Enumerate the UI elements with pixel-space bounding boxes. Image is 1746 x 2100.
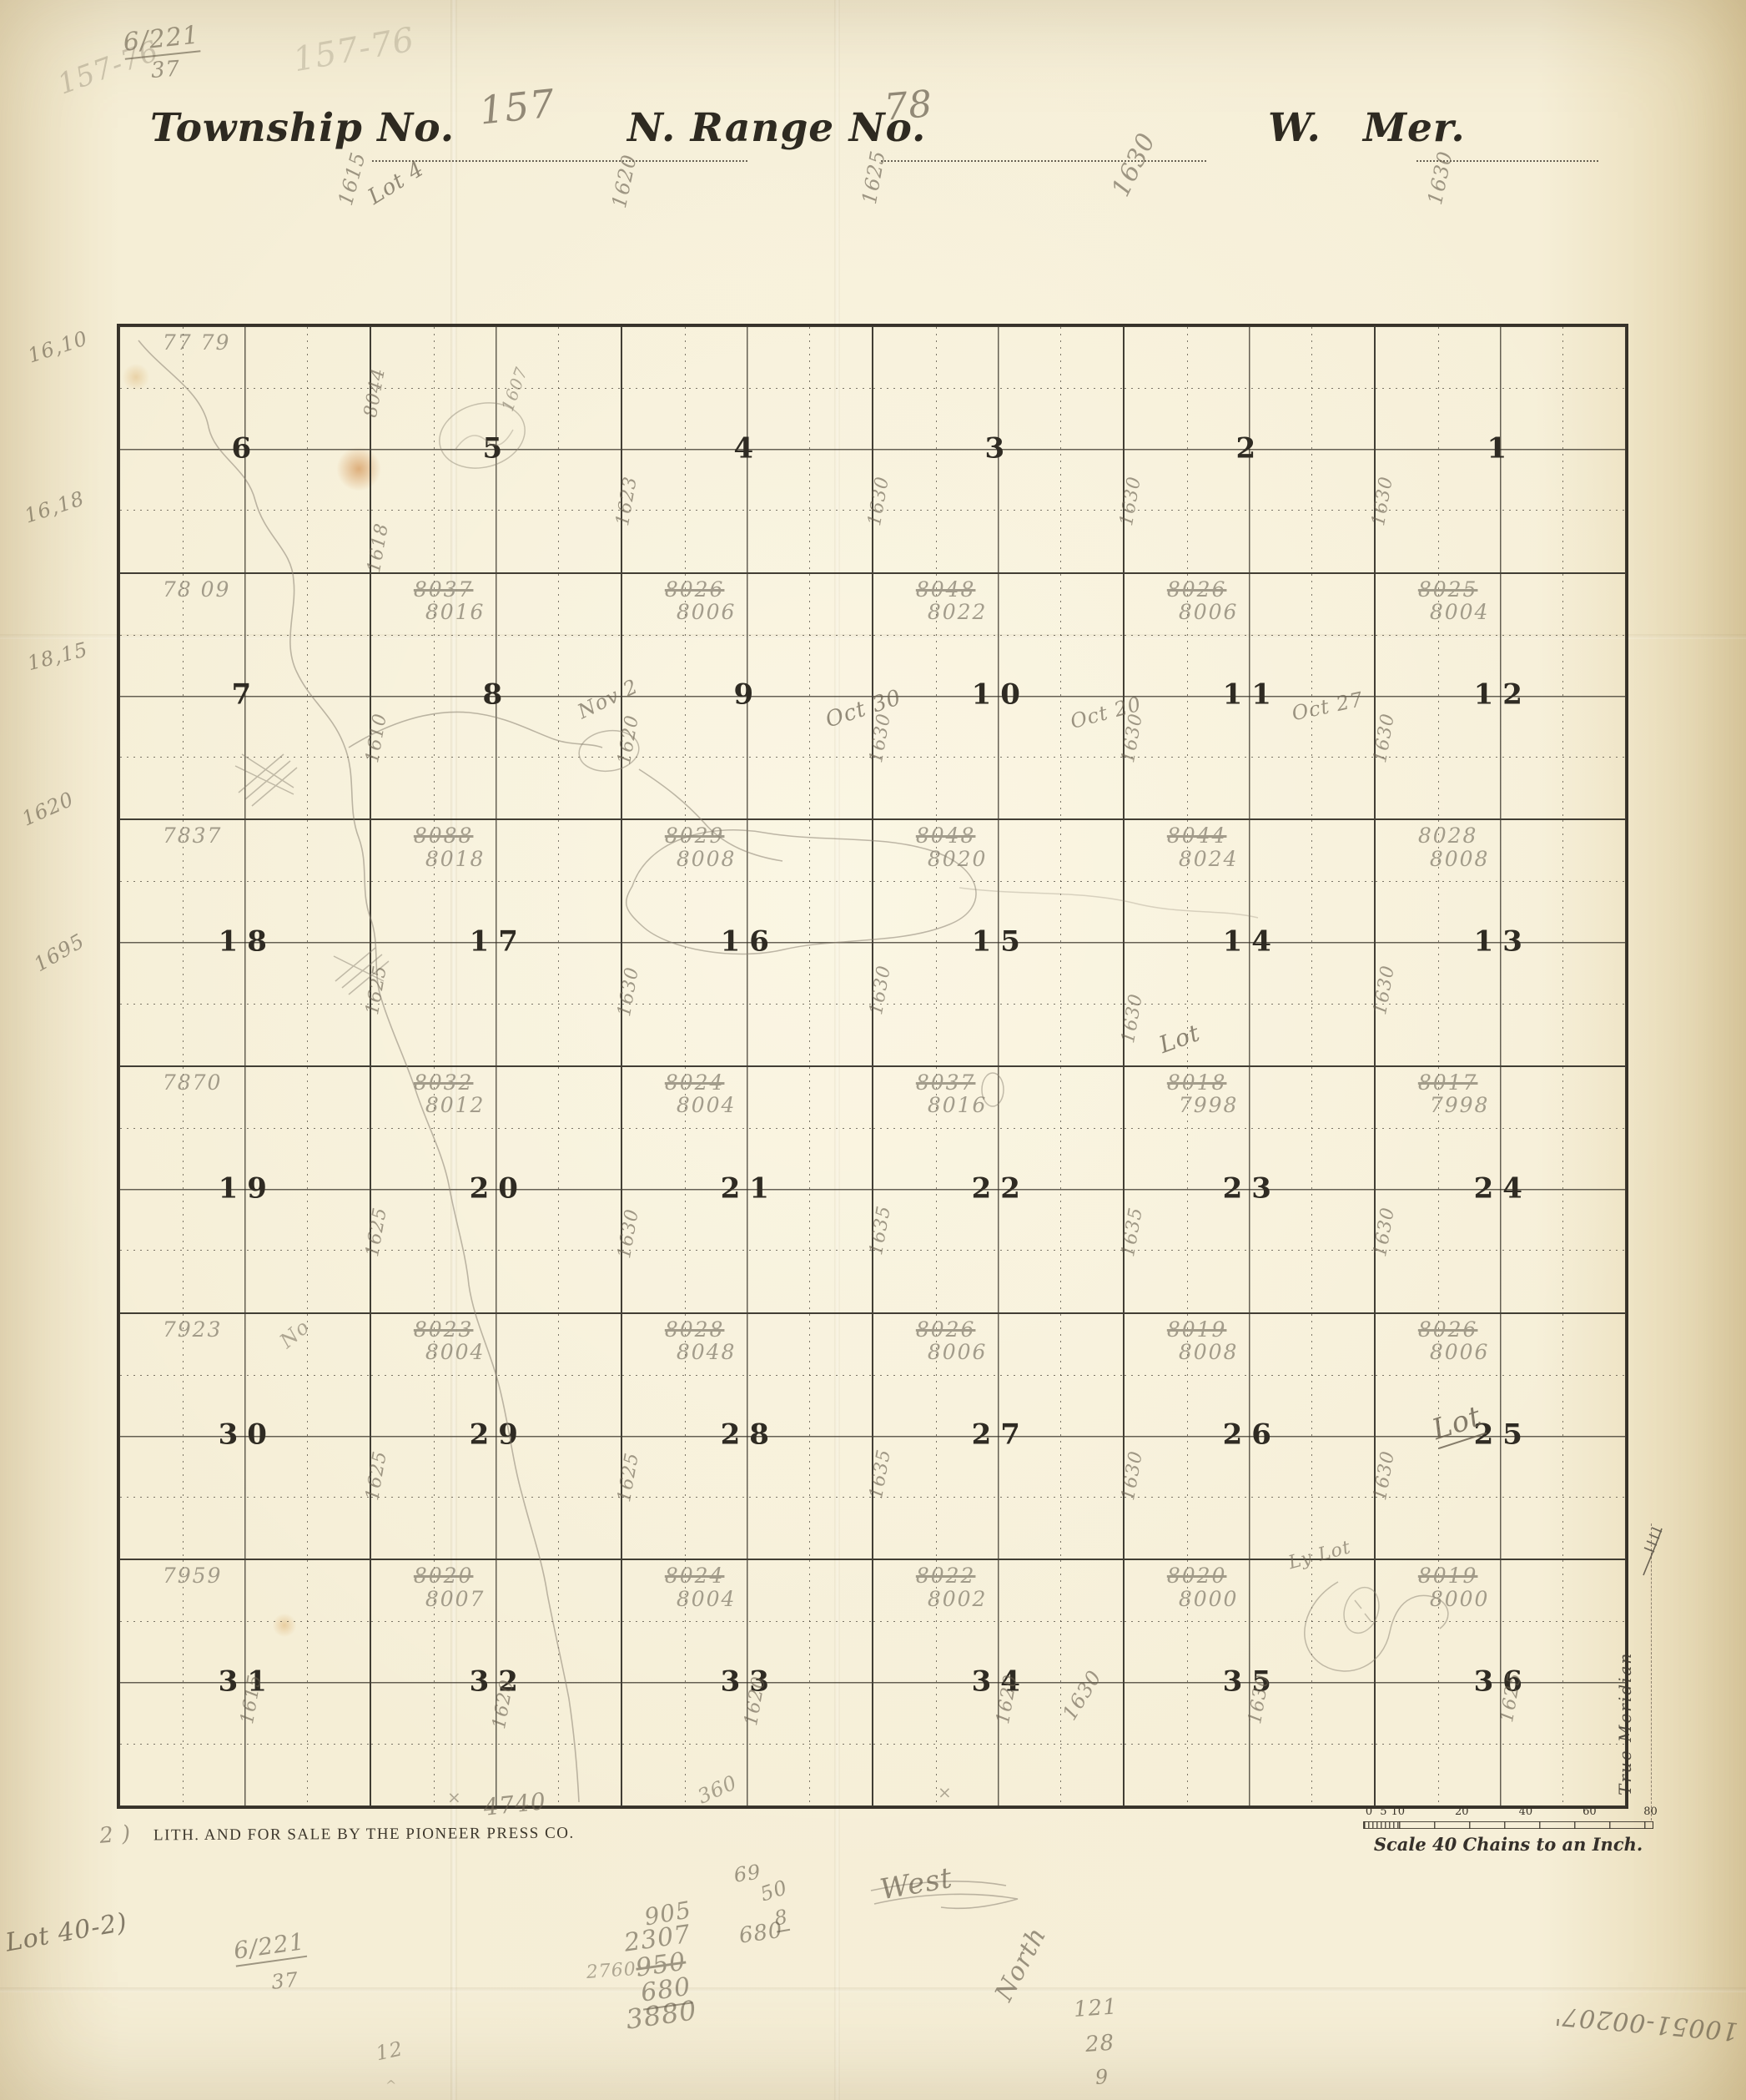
west-label: W. [1268, 105, 1321, 151]
section-number: 28 [721, 1418, 778, 1452]
pencil-note: Lot 4 [364, 156, 429, 209]
section-number: 7 [232, 678, 261, 712]
section-acreage-note: 80888018 [414, 824, 486, 870]
crossout-scribble [871, 1881, 1018, 1908]
pencil-note: 950 [634, 1947, 688, 1983]
pencil-note: 157-76 [290, 21, 418, 80]
section-number: 31 [219, 1665, 276, 1699]
scale-tick-label: 0 [1366, 1805, 1372, 1818]
section-grid: 77 7965432178 09780378016880268006980488… [117, 324, 1628, 1809]
section-27: 8026800627 [873, 1313, 1124, 1560]
pencil-note: North [989, 1922, 1053, 2006]
section-number: 12 [1474, 678, 1532, 712]
title-rule [881, 160, 1206, 162]
section-acreage-note: 80328012 [414, 1071, 486, 1117]
section-21: 8024800421 [621, 1066, 873, 1313]
section-26: 8019800826 [1124, 1313, 1375, 1560]
section-32: 8020800732 [370, 1559, 621, 1806]
section-9: 802680069 [621, 573, 873, 820]
publisher-imprint: LITH. AND FOR SALE BY THE PIONEER PRESS … [153, 1825, 575, 1846]
section-acreage-note: 7923 [163, 1318, 223, 1342]
section-31: 795931 [119, 1559, 370, 1806]
scale-tick-label: 10 [1391, 1805, 1405, 1818]
section-number: 19 [219, 1171, 276, 1205]
pencil-note: 37 [270, 1968, 299, 1994]
section-acreage-note: 80488022 [916, 578, 988, 624]
section-number: 20 [470, 1171, 527, 1205]
section-15: 8048802015 [873, 819, 1124, 1066]
section-acreage-note: 80228002 [916, 1564, 988, 1610]
section-14: 8044802414 [1124, 819, 1375, 1066]
title-rule [372, 160, 747, 162]
scale-tick-label: 60 [1582, 1805, 1597, 1818]
section-acreage-note: 80288048 [665, 1318, 737, 1364]
section-33: 8024800433 [621, 1559, 873, 1806]
section-20: 8032801220 [370, 1066, 621, 1313]
pencil-note: 2760 [586, 1959, 637, 1983]
section-acreage-note: 7837 [163, 824, 223, 848]
section-3: 3 [873, 326, 1124, 573]
section-acreage-note: 80208007 [414, 1564, 486, 1610]
pencil-note: 1620 [18, 788, 78, 831]
section-acreage-note: 80248004 [665, 1071, 737, 1117]
pencil-note: 16,18 [22, 486, 88, 527]
section-29: 8023800429 [370, 1313, 621, 1560]
pencil-note: 12 [374, 2037, 405, 2065]
pencil-note: 1615 [334, 149, 370, 208]
section-35: 8020800035 [1124, 1559, 1375, 1806]
section-acreage-note: 80268006 [665, 578, 737, 624]
section-acreage-note: 77 79 [163, 331, 231, 355]
scale-caption: Scale 40 Chains to an Inch. [1363, 1834, 1653, 1855]
section-11: 8026800611 [1124, 573, 1375, 820]
section-acreage-note: 80288008 [1418, 824, 1490, 870]
township-number-handwritten: 157 [477, 81, 557, 133]
section-number: 9 [734, 678, 763, 712]
section-acreage-note: 80268006 [1418, 1318, 1490, 1364]
pencil-note: 50 [757, 1876, 791, 1906]
pencil-note: West [878, 1861, 955, 1907]
section-acreage-note: 80378016 [414, 578, 486, 624]
pencil-note: 28 [1084, 2031, 1115, 2057]
pencil-note: 2 ) [98, 1821, 132, 1849]
section-acreage-note: 80258004 [1418, 578, 1490, 624]
section-number: 27 [972, 1418, 1029, 1452]
pencil-note: 37 [150, 57, 181, 83]
section-18: 783718 [119, 819, 370, 1066]
section-number: 15 [972, 925, 1029, 959]
section-number: 35 [1223, 1665, 1281, 1699]
section-acreage-note: 80187998 [1167, 1071, 1239, 1117]
section-number: 26 [1223, 1418, 1281, 1452]
section-7: 78 097 [119, 573, 370, 820]
range-label: N. Range No. [627, 105, 926, 151]
section-number: 4 [734, 431, 763, 465]
section-number: 21 [721, 1171, 778, 1205]
section-10: 8048802210 [873, 573, 1124, 820]
scale-bar-subdivisions [1364, 1822, 1401, 1828]
true-meridian-label: True Meridian [1615, 1652, 1635, 1795]
section-acreage-note: 80488020 [916, 824, 988, 870]
section-number: 33 [721, 1665, 778, 1699]
section-22: 8037801622 [873, 1066, 1124, 1313]
pencil-note: 18,15 [25, 637, 90, 675]
section-acreage-note: 7870 [163, 1071, 223, 1095]
pencil-note: 6/221 [122, 20, 201, 59]
section-number: 23 [1223, 1171, 1281, 1205]
section-23: 8018799823 [1124, 1066, 1375, 1313]
section-acreage-note: 80378016 [916, 1071, 988, 1117]
scale-bar-rule [1363, 1821, 1653, 1829]
pencil-note: 69 [732, 1860, 762, 1886]
section-acreage-note: 80208000 [1167, 1564, 1239, 1610]
section-2: 2 [1124, 326, 1375, 573]
true-meridian-line [1651, 1523, 1652, 1821]
section-19: 787019 [119, 1066, 370, 1313]
title-rule [1416, 160, 1598, 162]
section-30: 792330 [119, 1313, 370, 1560]
pencil-note: 121 [1073, 1994, 1119, 2022]
pencil-note: Lot 40-2) [3, 1907, 130, 1957]
section-number: 1 [1487, 431, 1517, 465]
section-number: 2 [1236, 431, 1265, 465]
section-number: 6 [232, 431, 261, 465]
scale-bar: 051020406080 Scale 40 Chains to an Inch. [1363, 1805, 1653, 1855]
section-acreage-note: 80238004 [414, 1318, 486, 1364]
section-number: 10 [972, 678, 1029, 712]
section-acreage-note: 80448024 [1167, 824, 1239, 870]
pencil-note: ^ [385, 2077, 397, 2093]
pencil-note: 680 [737, 1918, 784, 1949]
pencil-note: 8 [772, 1905, 790, 1932]
section-acreage-note: 80298008 [665, 824, 737, 870]
section-6: 77 796 [119, 326, 370, 573]
pencil-note: 1625 [858, 149, 890, 206]
section-16: 8029800816 [621, 819, 873, 1066]
section-number: 3 [985, 431, 1014, 465]
section-number: 13 [1474, 925, 1532, 959]
section-8: 803780168 [370, 573, 621, 820]
township-label: Township No. [150, 105, 455, 151]
section-acreage-note: 80268006 [916, 1318, 988, 1364]
scale-tick-labels: 051020406080 [1363, 1805, 1653, 1819]
section-number: 25 [1474, 1418, 1532, 1452]
section-1: 1 [1375, 326, 1626, 573]
pencil-note: 16,10 [25, 326, 91, 367]
section-4: 4 [621, 326, 873, 573]
section-17: 8088801817 [370, 819, 621, 1066]
pencil-note: 157-76 [53, 34, 164, 102]
township-plat-sheet: Township No. 157 N. Range No. 78 W. Mer.… [0, 0, 1746, 2100]
section-number: 32 [470, 1665, 527, 1699]
scale-tick-label: 5 [1380, 1805, 1386, 1818]
section-12: 8025800412 [1375, 573, 1626, 820]
pencil-note: 680 [639, 1972, 693, 2011]
section-25: 8026800625 [1375, 1313, 1626, 1560]
section-number: 36 [1474, 1665, 1532, 1699]
pencil-note: 9 [1094, 2065, 1109, 2089]
pencil-note: 3880 [624, 1994, 699, 2036]
section-acreage-note: 7959 [163, 1564, 223, 1588]
section-acreage-note: 78 09 [163, 578, 231, 602]
section-number: 11 [1223, 678, 1281, 712]
section-number: 14 [1223, 925, 1281, 959]
scale-tick-label: 20 [1455, 1805, 1469, 1818]
section-5: 5 [370, 326, 621, 573]
section-number: 30 [219, 1418, 276, 1452]
scale-tick-label: 40 [1519, 1805, 1533, 1818]
section-number: 24 [1474, 1171, 1532, 1205]
section-acreage-note: 80198000 [1418, 1564, 1490, 1610]
section-number: 17 [470, 925, 527, 959]
section-acreage-note: 80248004 [665, 1564, 737, 1610]
section-acreage-note: 80177998 [1418, 1071, 1490, 1117]
pencil-note: 905 [642, 1896, 693, 1931]
pencil-note: 10051-00207' [1553, 2001, 1739, 2046]
section-24: 8017799824 [1375, 1066, 1626, 1313]
section-28: 8028804828 [621, 1313, 873, 1560]
section-acreage-note: 80198008 [1167, 1318, 1239, 1364]
pencil-note: 1630 [1423, 149, 1457, 206]
meridian-label: Mer. [1363, 105, 1466, 151]
section-number: 5 [483, 431, 512, 465]
true-meridian-arrow-icon [1643, 1528, 1662, 1575]
section-36: 8019800036 [1375, 1559, 1626, 1806]
section-number: 18 [219, 925, 276, 959]
pencil-note: 1630 [1106, 128, 1162, 202]
section-number: 29 [470, 1418, 527, 1452]
section-number: 8 [483, 678, 512, 712]
pencil-note: 1695 [30, 929, 88, 976]
section-number: 22 [972, 1171, 1029, 1205]
pencil-note: 2307 [622, 1920, 692, 1958]
pencil-note: 6/221 [232, 1927, 307, 1967]
section-13: 8028800813 [1375, 819, 1626, 1066]
section-number: 16 [721, 925, 778, 959]
fold-crease-horizontal [0, 1987, 1746, 1992]
section-acreage-note: 80268006 [1167, 578, 1239, 624]
section-number: 34 [972, 1665, 1029, 1699]
section-34: 8022800234 [873, 1559, 1124, 1806]
